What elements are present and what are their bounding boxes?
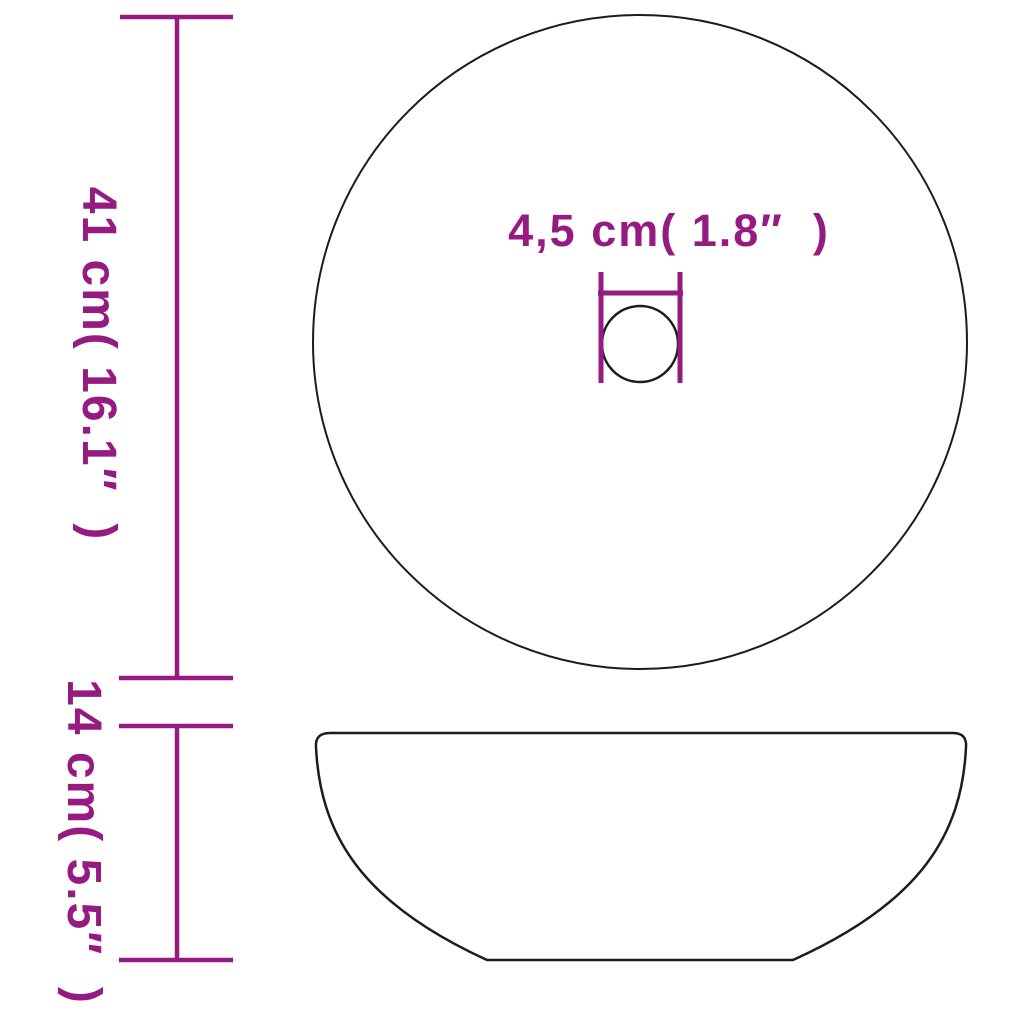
diagram-drawing (0, 0, 1024, 1024)
dimension-diagram-canvas: 41 cm( 16.1″ ) 14 cm( 5.5″ ) 4,5 cm( 1.8… (0, 0, 1024, 1024)
drain-dimension-label: 4,5 cm( 1.8″ ) (499, 208, 839, 254)
height-dimension-label: 14 cm( 5.5″ ) (57, 672, 107, 1012)
diameter-dimension-label: 41 cm( 16.1″ ) (72, 154, 122, 574)
basin-side-view-outline (316, 733, 966, 960)
basin-top-view-outline (313, 15, 967, 669)
drain-hole-circle (602, 306, 678, 382)
diameter-dimension-lines (119, 17, 233, 678)
height-dimension-lines (119, 726, 233, 960)
